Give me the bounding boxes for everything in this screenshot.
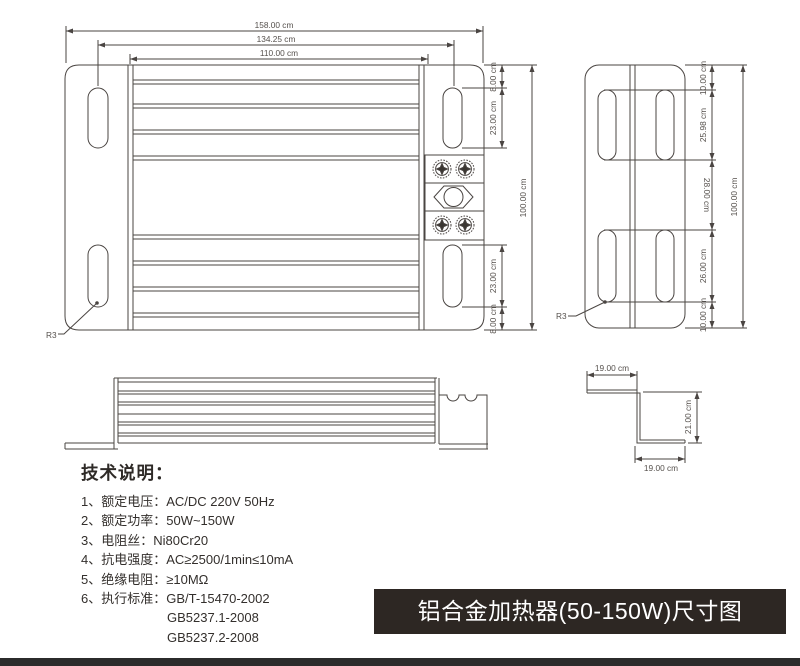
tech-specs-heading: 技术说明： bbox=[81, 460, 391, 485]
side-slot-top-right bbox=[656, 90, 674, 160]
tech-specs: 技术说明： 1、额定电压：AC/DC 220V 50Hz 2、额定功率：50W~… bbox=[81, 460, 391, 647]
front-slot-top-right bbox=[443, 88, 462, 148]
front-left-plate bbox=[65, 65, 133, 330]
dim-side-slot-bottom: 26.00 cm bbox=[698, 249, 708, 283]
dim-front-corner-radius: R3 bbox=[46, 330, 57, 340]
dim-side-top-offset: 10.00 cm bbox=[698, 61, 708, 95]
front-view-drawing bbox=[58, 26, 537, 334]
dim-side-slot-top: 25.98 cm bbox=[698, 108, 708, 142]
dim-side-bottom-offset: 10.00 cm bbox=[698, 298, 708, 332]
terminal-block bbox=[425, 155, 484, 240]
dim-front-height-total: 100.00 cm bbox=[518, 179, 528, 218]
spec-resistance-wire: 3、电阻丝：Ni80Cr20 bbox=[81, 531, 391, 550]
dim-front-top-offset: 8.00 cm bbox=[488, 62, 498, 92]
spec-dielectric-strength: 4、抗电强度：AC≥2500/1min≤10mA bbox=[81, 550, 391, 569]
title-banner: 铝合金加热器(50-150W)尺寸图 bbox=[374, 589, 786, 634]
dim-front-width-slot-centers: 134.25 cm bbox=[257, 34, 296, 44]
dim-front-width-total: 158.00 cm bbox=[255, 20, 294, 30]
front-slot-bottom-right bbox=[443, 245, 462, 307]
dim-bracket-height: 21.00 cm bbox=[683, 400, 693, 434]
side-view-drawing bbox=[568, 65, 747, 328]
side-right-dims bbox=[604, 65, 747, 328]
spec-standard-cont-1: GB5237.1-2008 bbox=[81, 608, 391, 627]
dim-side-middle-gap: 28.00 cm bbox=[702, 178, 712, 212]
dim-front-bottom-offset: 8.00 cm bbox=[488, 304, 498, 334]
side-slot-bottom-left bbox=[598, 230, 616, 302]
footer-bar bbox=[0, 658, 800, 666]
side-slot-bottom-right bbox=[656, 230, 674, 302]
front-right-plate bbox=[424, 65, 484, 330]
front-r3-leader bbox=[58, 301, 99, 334]
spec-insulation-resistance: 5、绝缘电阻：≥10MΩ bbox=[81, 570, 391, 589]
spec-rated-power: 2、额定功率：50W~150W bbox=[81, 511, 391, 530]
dim-front-width-body: 110.00 cm bbox=[260, 48, 298, 58]
profile-fins bbox=[118, 382, 435, 436]
dim-front-slot-bottom: 23.00 cm bbox=[488, 259, 498, 293]
front-body-fins bbox=[133, 80, 419, 317]
spec-standard-cont-2: GB5237.2-2008 bbox=[81, 628, 391, 647]
profile-view-drawing bbox=[65, 378, 488, 449]
profile-end-bracket bbox=[439, 395, 487, 449]
spec-rated-voltage: 1、额定电压：AC/DC 220V 50Hz bbox=[81, 492, 391, 511]
dim-front-slot-top: 23.00 cm bbox=[488, 101, 498, 135]
hex-nut-icon bbox=[434, 186, 473, 208]
front-slot-bottom-left bbox=[88, 245, 108, 307]
spec-standards: 6、执行标准：GB/T-15470-2002 bbox=[81, 589, 391, 608]
dim-bracket-top-width: 19.00 cm bbox=[595, 363, 629, 373]
side-slot-top-left bbox=[598, 90, 616, 160]
dim-bracket-bottom-width: 19.00 cm bbox=[644, 463, 678, 473]
side-r3-leader bbox=[568, 300, 607, 316]
dim-side-corner-radius: R3 bbox=[556, 311, 567, 321]
dim-side-height-total: 100.00 cm bbox=[729, 178, 739, 217]
front-slot-top-left bbox=[88, 88, 108, 148]
front-body bbox=[128, 65, 424, 330]
